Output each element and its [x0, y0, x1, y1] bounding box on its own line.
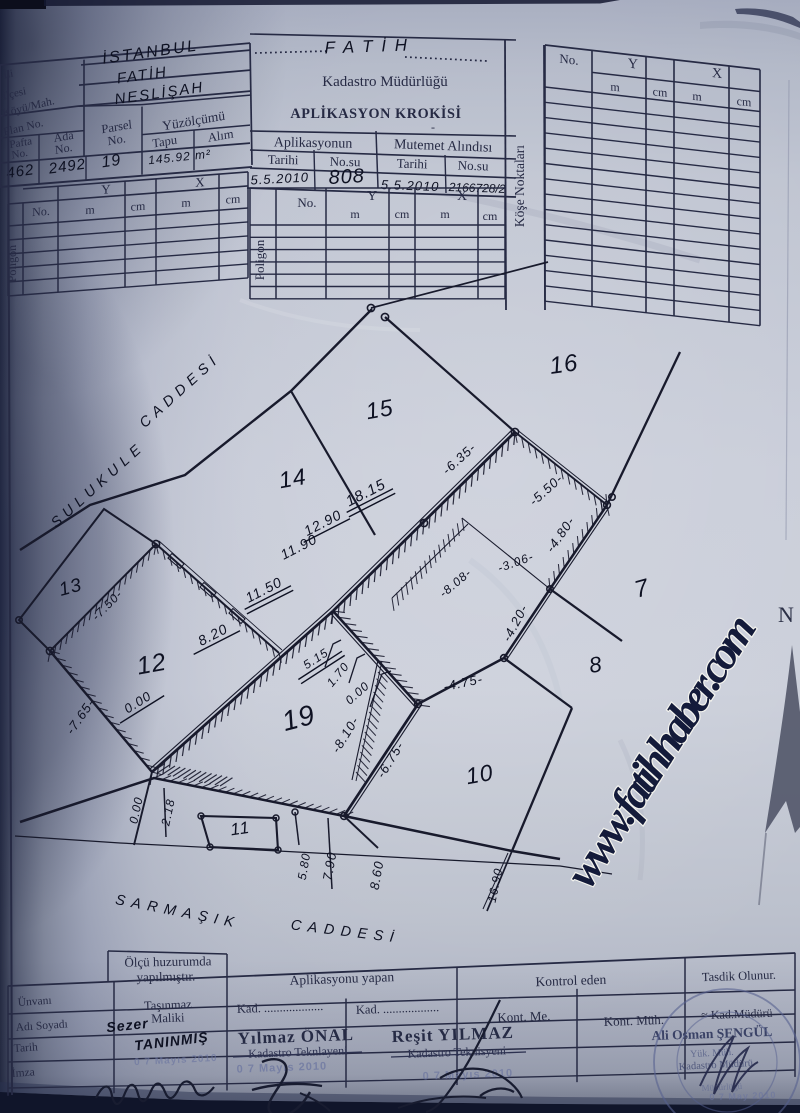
svg-text:Aplikasyonun: Aplikasyonun — [274, 135, 353, 151]
svg-text:16: 16 — [548, 349, 580, 380]
svg-text:14: 14 — [277, 463, 309, 493]
svg-text:APLİKASYON KROKİSİ: APLİKASYON KROKİSİ — [290, 105, 461, 122]
svg-text:808: 808 — [328, 165, 365, 189]
svg-text:X: X — [457, 189, 467, 204]
svg-text:Y: Y — [367, 189, 377, 204]
svg-text:11: 11 — [229, 818, 251, 840]
svg-text:m: m — [440, 207, 450, 221]
svg-text:cm: cm — [395, 207, 410, 221]
svg-text:Y: Y — [628, 55, 638, 72]
svg-text:Tarihi: Tarihi — [268, 152, 300, 168]
svg-text:X: X — [195, 174, 205, 190]
svg-text:10: 10 — [464, 759, 496, 789]
svg-text:cm: cm — [226, 191, 241, 206]
svg-text:m: m — [181, 195, 191, 210]
svg-text:Kontrol eden: Kontrol eden — [535, 972, 607, 989]
svg-text:19: 19 — [100, 152, 122, 172]
svg-text:Ölçü huzurumda: Ölçü huzurumda — [124, 953, 211, 970]
svg-text:Kad. ..................: Kad. .................. — [356, 1000, 440, 1017]
svg-text:Tarih: Tarih — [13, 1041, 38, 1055]
svg-text:F A T İ H: F A T İ H — [324, 36, 409, 58]
svg-text:m: m — [610, 79, 620, 94]
svg-text:Y: Y — [101, 181, 111, 197]
svg-text:N: N — [778, 602, 794, 627]
svg-text:No.su: No.su — [458, 157, 490, 173]
svg-text:m: m — [85, 202, 95, 217]
svg-text:Köşe Noktaları: Köşe Noktaları — [512, 145, 527, 227]
svg-text:Poligon: Poligon — [252, 239, 267, 280]
svg-text:Kont. Müh.: Kont. Müh. — [603, 1012, 664, 1029]
svg-text:X: X — [712, 65, 722, 82]
svg-text:cm: cm — [737, 94, 752, 110]
svg-text:15: 15 — [364, 394, 396, 424]
svg-text:Tarihi: Tarihi — [396, 155, 428, 171]
svg-text:No.: No. — [297, 195, 316, 210]
svg-text:Poligon: Poligon — [5, 245, 19, 283]
svg-text:cm: cm — [653, 84, 668, 100]
svg-text:cm: cm — [131, 199, 146, 214]
svg-text:yapılmıştır.: yapılmıştır. — [136, 968, 195, 984]
svg-text:Maliki: Maliki — [151, 1010, 185, 1025]
svg-text:m: m — [692, 89, 702, 104]
svg-text:Tasdik Olunur.: Tasdik Olunur. — [702, 968, 777, 985]
svg-text:12: 12 — [134, 648, 168, 681]
svg-text:m: m — [350, 207, 360, 221]
svg-text:No.: No. — [559, 51, 578, 68]
svg-text:cm: cm — [483, 209, 498, 223]
svg-text:-: - — [431, 120, 435, 134]
svg-text:Kadastro Müdürlüğü: Kadastro Müdürlüğü — [322, 74, 448, 90]
svg-text:No.: No. — [32, 204, 50, 219]
svg-text:5.5.2010: 5.5.2010 — [250, 169, 309, 187]
